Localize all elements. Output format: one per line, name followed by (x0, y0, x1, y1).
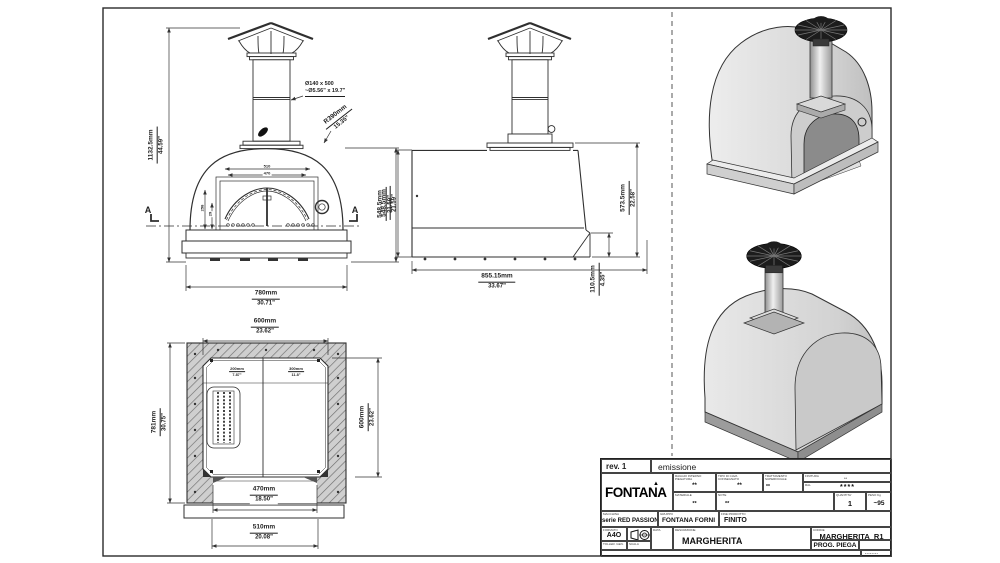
group-cell: GRUPPO FONTANA FORNI (658, 511, 719, 527)
quantity-cell: QUANTITA' 1 (834, 492, 866, 511)
dim-plan-right-zone: 300mm11.8" (288, 366, 304, 378)
chimney-size-note: Ø140 x 500~Ø5.56" x 19.7" (305, 81, 345, 97)
flame-icon: ▲ (653, 481, 659, 487)
technical-drawing-sheet: 1132.5mm44.59" 548.5mm21.59" 780mm30.71"… (0, 0, 1000, 563)
material-cell: MATERIALE ** (673, 492, 716, 511)
dim-plan-outer-depth: 781mm30.75" (151, 408, 170, 436)
dim-plan-door-width: 470mm18.50" (250, 486, 278, 505)
dim-side-depth: 855.15mm33.67" (478, 273, 515, 292)
revision-cell: rev. 1 (601, 459, 651, 473)
plan-inner-chamber (203, 358, 328, 477)
dim-opening-outer: 510 (263, 164, 272, 169)
disclaimer-cell: Questo disegno è proprietà riservata di … (601, 550, 861, 557)
revision-note-value: emissione (658, 462, 696, 472)
dim-arch-rise: 29 (208, 211, 213, 217)
logo-cell: FONTANA ▲ (601, 473, 673, 511)
prog-blank-cell (859, 540, 892, 550)
plan-front-ledge (184, 505, 344, 518)
title-block: rev. 1 emissione FONTANA ▲ RAGGIO INTERN… (600, 458, 891, 556)
end-product-cell: FINE PRODOTTO FINITO (719, 511, 892, 527)
dim-opening-height: 258 (200, 204, 205, 213)
dim-front-overall-height: 1132.5mm44.59" (148, 126, 167, 163)
spec3-cell: TRATTAMENTOSUPERFICIALE ** (763, 473, 803, 492)
dim-side-total-height: 573.5mm22.58" (620, 181, 639, 215)
dim-side-ledge-height: 110.5mm4.35" (590, 262, 609, 295)
machine-cell: MACCHINA serie RED PASSION (601, 511, 658, 527)
finish-label-cell: FINITURA ** (803, 473, 892, 482)
iso2-chimney-pipe (765, 268, 783, 315)
dim-plan-inner-width: 600mm23.62" (251, 318, 279, 337)
prog-cell: PROG. PIEGA (811, 540, 859, 550)
fontana-logo: FONTANA (605, 485, 667, 500)
stamp-cell: ******** (861, 550, 892, 557)
finish-value-cell: RAL **** (803, 482, 892, 492)
section-mark-right: A (352, 205, 359, 215)
projection-symbol-cell (627, 527, 651, 541)
projection-symbol-icon (629, 529, 651, 541)
spec2-cell: TIPO DI CAVACONSEGNATO ** (716, 473, 763, 492)
dim-front-overall-width: 780mm30.71" (252, 290, 280, 309)
format-cell: FORMATO A4O (601, 527, 627, 541)
dim-plan-inner-depth: 600mm23.62" (359, 403, 378, 431)
dim-plan-front-width: 510mm20.08" (250, 524, 278, 543)
description-cell: DESCRIZIONE MARGHERITA (673, 527, 811, 550)
dim-side-body-height: 548.5mm21.59" (381, 186, 400, 220)
dim-opening-inner: 470 (263, 171, 272, 176)
spec1-cell: RAGGIO INTERNOPIEGATURA ** (673, 473, 716, 492)
tolerance-cell: TOLLER. GEN. (601, 541, 627, 550)
code-cell: CODICE MARGHERITA_R1 (811, 527, 892, 540)
note-cell: NOTE ** (716, 492, 834, 511)
revision-value: rev. 1 (606, 462, 626, 471)
scale-cell: SCALA (627, 541, 651, 550)
dim-plan-left-zone: 200mm7.87" (229, 366, 245, 378)
iso1-chimney-pipe (810, 40, 832, 98)
revision-note-cell: emissione (651, 459, 892, 473)
date-cell: DATA (651, 527, 673, 550)
weight-cell: PESO Kg ~95 (866, 492, 892, 511)
section-mark-left: A (145, 205, 152, 215)
